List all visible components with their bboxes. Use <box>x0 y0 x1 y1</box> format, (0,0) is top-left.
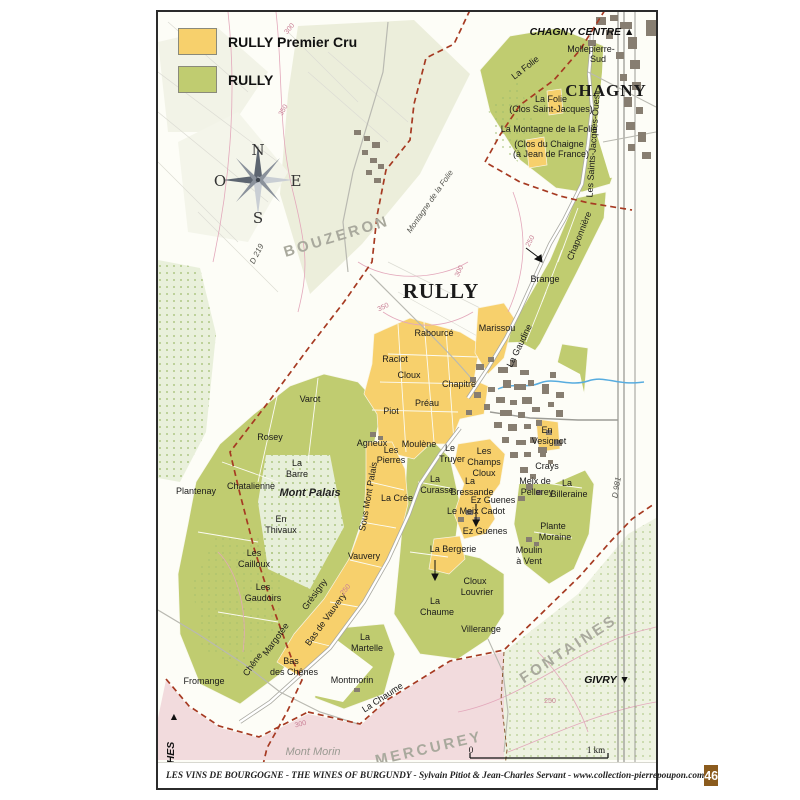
compass-s: S <box>253 209 263 227</box>
map-label: Fromange <box>183 676 224 686</box>
map-label: Le Meix Cadot <box>447 506 506 516</box>
legend-label-premier-cru: RULLY Premier Cru <box>228 34 357 50</box>
map-label: Meix de <box>519 476 551 486</box>
map-page: NESOCHAGNY CENTRE ▲GIVRY ▼COUCHES▲RULLYC… <box>0 0 800 800</box>
compass-n: N <box>251 141 264 159</box>
scale-start: 0 <box>469 745 474 755</box>
map-label: La <box>465 476 475 486</box>
map-label: Louvrier <box>461 587 494 597</box>
legend-item-village: RULLY <box>178 66 357 93</box>
map-label: Cloux <box>472 468 496 478</box>
map-label: Barre <box>286 469 308 479</box>
map-label: Montmorin <box>331 675 374 685</box>
map-label: Truyer <box>439 454 465 464</box>
map-label: Moraine <box>539 532 572 542</box>
map-canvas: NESOCHAGNY CENTRE ▲GIVRY ▼COUCHES▲RULLYC… <box>158 12 656 788</box>
map-label: Mollepierre- <box>567 44 615 54</box>
map-label: Martelle <box>351 643 383 653</box>
hill-mont-palais: Mont Palais <box>279 487 340 499</box>
map-label: Cloux <box>463 576 487 586</box>
map-label: Plantenay <box>176 486 217 496</box>
map-label: En <box>541 425 552 435</box>
town-rully: RULLY <box>403 279 480 303</box>
map-label: Moulène <box>402 439 437 449</box>
map-label: Thivaux <box>265 525 297 535</box>
map-label: Billeraine <box>550 489 587 499</box>
scale-end: 1 km <box>587 745 605 755</box>
map-label: Les <box>247 548 262 558</box>
map-label: Les <box>477 446 492 456</box>
map-label: Rabourcé <box>414 328 453 338</box>
map-label: Bas <box>283 656 299 666</box>
map-label: 250 <box>544 698 556 705</box>
town-chagny: CHAGNY <box>565 81 647 100</box>
map-label: Chaume <box>420 607 454 617</box>
map-label: Plante <box>540 521 566 531</box>
map-label: La <box>360 632 370 642</box>
map-label: Chapitre <box>442 379 476 389</box>
legend: RULLY Premier Cru RULLY <box>178 28 357 104</box>
map-label: La <box>430 474 440 484</box>
map-label: Vauvery <box>348 551 381 561</box>
map-label: Les <box>256 582 271 592</box>
map-label: (à Jean de France) <box>513 149 589 159</box>
map-label: des Chênes <box>270 667 319 677</box>
map-label: En <box>275 514 286 524</box>
map-label: Sud <box>590 54 606 64</box>
map-label: La Bergerie <box>430 544 477 554</box>
legend-swatch-village <box>178 66 217 93</box>
compass-e: E <box>291 172 302 190</box>
map-label: La <box>430 596 440 606</box>
legend-item-premier-cru: RULLY Premier Cru <box>178 28 357 55</box>
legend-label-village: RULLY <box>228 72 273 88</box>
map-label: à Vent <box>516 556 542 566</box>
map-label: Chatalienne <box>227 481 275 491</box>
map-label: Varot <box>300 394 321 404</box>
map-label: Préau <box>415 398 439 408</box>
map-label: Pierres <box>377 455 406 465</box>
map-label: Ez Guenes <box>471 495 516 505</box>
map-label: Champs <box>467 457 501 467</box>
map-label: Moulin <box>516 545 543 555</box>
map-label: La <box>562 478 572 488</box>
map-label: Gaudoirs <box>245 593 282 603</box>
map-label: La Folie <box>535 94 567 104</box>
map-label: (Clos du Chaigne <box>514 139 584 149</box>
map-label: Pellerey <box>521 487 554 497</box>
map-label: (Clos Saint-Jacques) <box>509 104 593 114</box>
map-label: La <box>292 458 302 468</box>
map-label: Vesignot <box>532 436 567 446</box>
map-panel: NESOCHAGNY CENTRE ▲GIVRY ▼COUCHES▲RULLYC… <box>156 10 658 790</box>
map-label: Raclot <box>382 354 408 364</box>
footer-credit: LES VINS DE BOURGOGNE - THE WINES OF BUR… <box>158 771 704 781</box>
dir-couches-arrow: ▲ <box>169 711 179 723</box>
hill-mont-morin: Mont Morin <box>285 746 340 758</box>
dir-givry: GIVRY ▼ <box>584 674 630 686</box>
compass-w: O <box>214 172 226 190</box>
map-label: Cailloux <box>238 559 271 569</box>
map-label: Le <box>445 443 455 453</box>
map-label: Rosey <box>257 432 283 442</box>
map-label: Crays <box>535 461 559 471</box>
map-label: Cloux <box>397 370 421 380</box>
map-label: Ez Guenes <box>463 526 508 536</box>
map-label: Villerange <box>461 624 501 634</box>
map-label: Brange <box>530 274 559 284</box>
footer-bar: LES VINS DE BOURGOGNE - THE WINES OF BUR… <box>158 762 656 788</box>
map-label: Les <box>384 445 399 455</box>
map-label: Marissou <box>479 323 516 333</box>
map-label: Curasse <box>420 485 454 495</box>
page-number: 46 <box>704 765 718 786</box>
map-label: La Crée <box>381 493 413 503</box>
legend-swatch-premier-cru <box>178 28 217 55</box>
map-label: Piot <box>383 406 399 416</box>
map-label: La Montagne de la Folie <box>501 124 598 134</box>
dir-chagny-centre: CHAGNY CENTRE ▲ <box>530 26 635 38</box>
